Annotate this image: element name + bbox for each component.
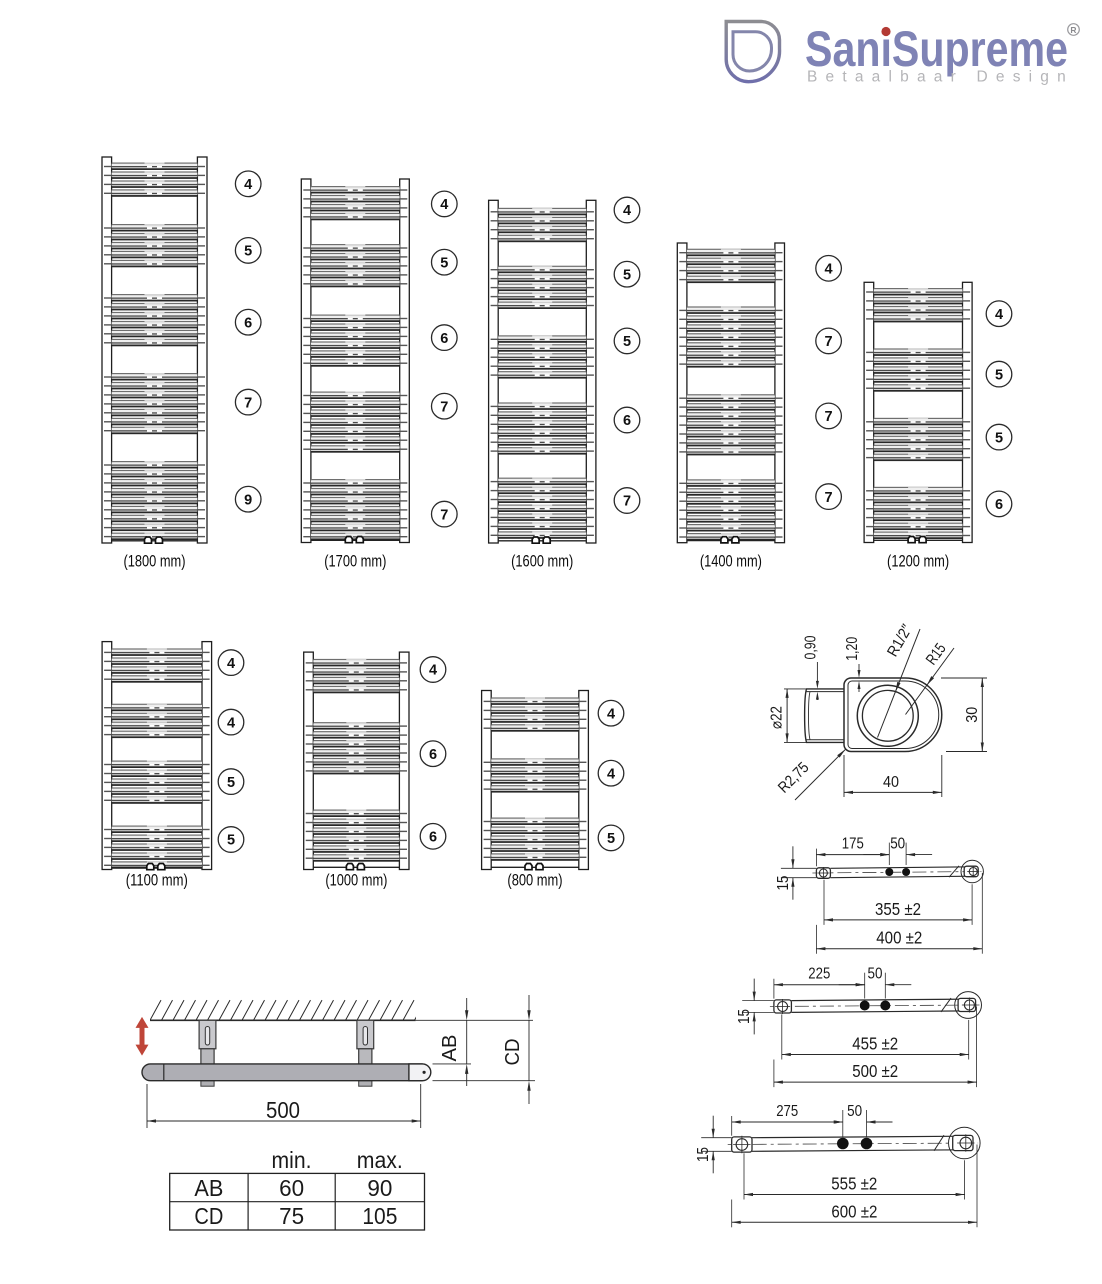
svg-text:15: 15 <box>695 1147 712 1162</box>
svg-text:CD: CD <box>502 1039 524 1066</box>
svg-text:min.: min. <box>272 1147 312 1173</box>
svg-text:5: 5 <box>995 430 1003 446</box>
svg-text:R: R <box>1070 25 1076 35</box>
svg-text:5: 5 <box>623 267 631 283</box>
svg-text:(1700 mm): (1700 mm) <box>324 553 386 571</box>
svg-text:Betaalbaar Design: Betaalbaar Design <box>807 69 1074 86</box>
svg-text:max.: max. <box>357 1147 403 1173</box>
svg-text:5: 5 <box>227 775 235 791</box>
svg-text:1,20: 1,20 <box>844 637 861 661</box>
svg-text:4: 4 <box>440 197 448 213</box>
svg-text:600 ±2: 600 ±2 <box>831 1201 877 1221</box>
svg-text:AB: AB <box>439 1035 461 1062</box>
svg-text:75: 75 <box>279 1203 304 1229</box>
svg-text:5: 5 <box>623 334 631 350</box>
svg-text:6: 6 <box>440 331 448 347</box>
svg-text:(1200 mm): (1200 mm) <box>887 553 949 571</box>
svg-text:4: 4 <box>623 203 631 219</box>
svg-text:50: 50 <box>847 1103 862 1120</box>
svg-text:7: 7 <box>244 395 252 411</box>
svg-text:500: 500 <box>266 1097 300 1123</box>
svg-text:50: 50 <box>868 966 883 983</box>
svg-text:6: 6 <box>244 315 252 331</box>
svg-text:4: 4 <box>607 766 615 782</box>
svg-text:7: 7 <box>825 490 833 506</box>
svg-text:15: 15 <box>775 876 792 891</box>
svg-text:60: 60 <box>279 1175 304 1201</box>
svg-text:555 ±2: 555 ±2 <box>831 1174 877 1194</box>
svg-text:455 ±2: 455 ±2 <box>852 1034 898 1054</box>
svg-text:5: 5 <box>607 831 615 847</box>
svg-text:(1000 mm): (1000 mm) <box>325 872 387 890</box>
svg-text:175: 175 <box>842 836 864 853</box>
svg-text:5: 5 <box>440 255 448 271</box>
svg-text:30: 30 <box>964 707 981 723</box>
svg-text:4: 4 <box>607 706 615 722</box>
svg-text:4: 4 <box>429 663 437 679</box>
svg-text:105: 105 <box>362 1203 397 1229</box>
svg-text:355 ±2: 355 ±2 <box>875 899 921 919</box>
svg-text:(1400 mm): (1400 mm) <box>700 553 762 571</box>
svg-text:225: 225 <box>808 966 830 983</box>
svg-text:4: 4 <box>825 262 833 278</box>
svg-text:15: 15 <box>736 1009 753 1024</box>
svg-text:7: 7 <box>623 494 631 510</box>
svg-text:4: 4 <box>244 177 252 193</box>
svg-text:275: 275 <box>776 1103 798 1120</box>
svg-text:⌀22: ⌀22 <box>769 706 786 729</box>
svg-text:0,90: 0,90 <box>803 635 820 659</box>
svg-text:6: 6 <box>429 830 437 846</box>
svg-text:6: 6 <box>429 747 437 763</box>
svg-text:5: 5 <box>244 244 252 260</box>
svg-text:400 ±2: 400 ±2 <box>876 928 922 948</box>
svg-text:7: 7 <box>440 507 448 523</box>
svg-text:5: 5 <box>227 833 235 849</box>
svg-text:7: 7 <box>825 334 833 350</box>
svg-text:40: 40 <box>883 774 899 791</box>
svg-text:9: 9 <box>244 492 252 508</box>
svg-text:4: 4 <box>995 307 1003 323</box>
svg-text:4: 4 <box>227 715 235 731</box>
svg-text:7: 7 <box>440 399 448 415</box>
svg-text:6: 6 <box>623 413 631 429</box>
svg-text:7: 7 <box>825 409 833 425</box>
svg-text:(1800 mm): (1800 mm) <box>123 553 185 571</box>
svg-text:6: 6 <box>995 497 1003 513</box>
svg-text:500 ±2: 500 ±2 <box>852 1061 898 1081</box>
svg-text:4: 4 <box>227 656 235 672</box>
svg-text:CD: CD <box>194 1203 223 1229</box>
svg-text:5: 5 <box>995 367 1003 383</box>
svg-text:AB: AB <box>194 1175 223 1201</box>
svg-text:50: 50 <box>890 836 905 853</box>
svg-text:(1600 mm): (1600 mm) <box>511 553 573 571</box>
svg-text:(800 mm): (800 mm) <box>507 872 562 890</box>
svg-text:(1100 mm): (1100 mm) <box>126 872 188 890</box>
svg-text:90: 90 <box>367 1175 392 1201</box>
